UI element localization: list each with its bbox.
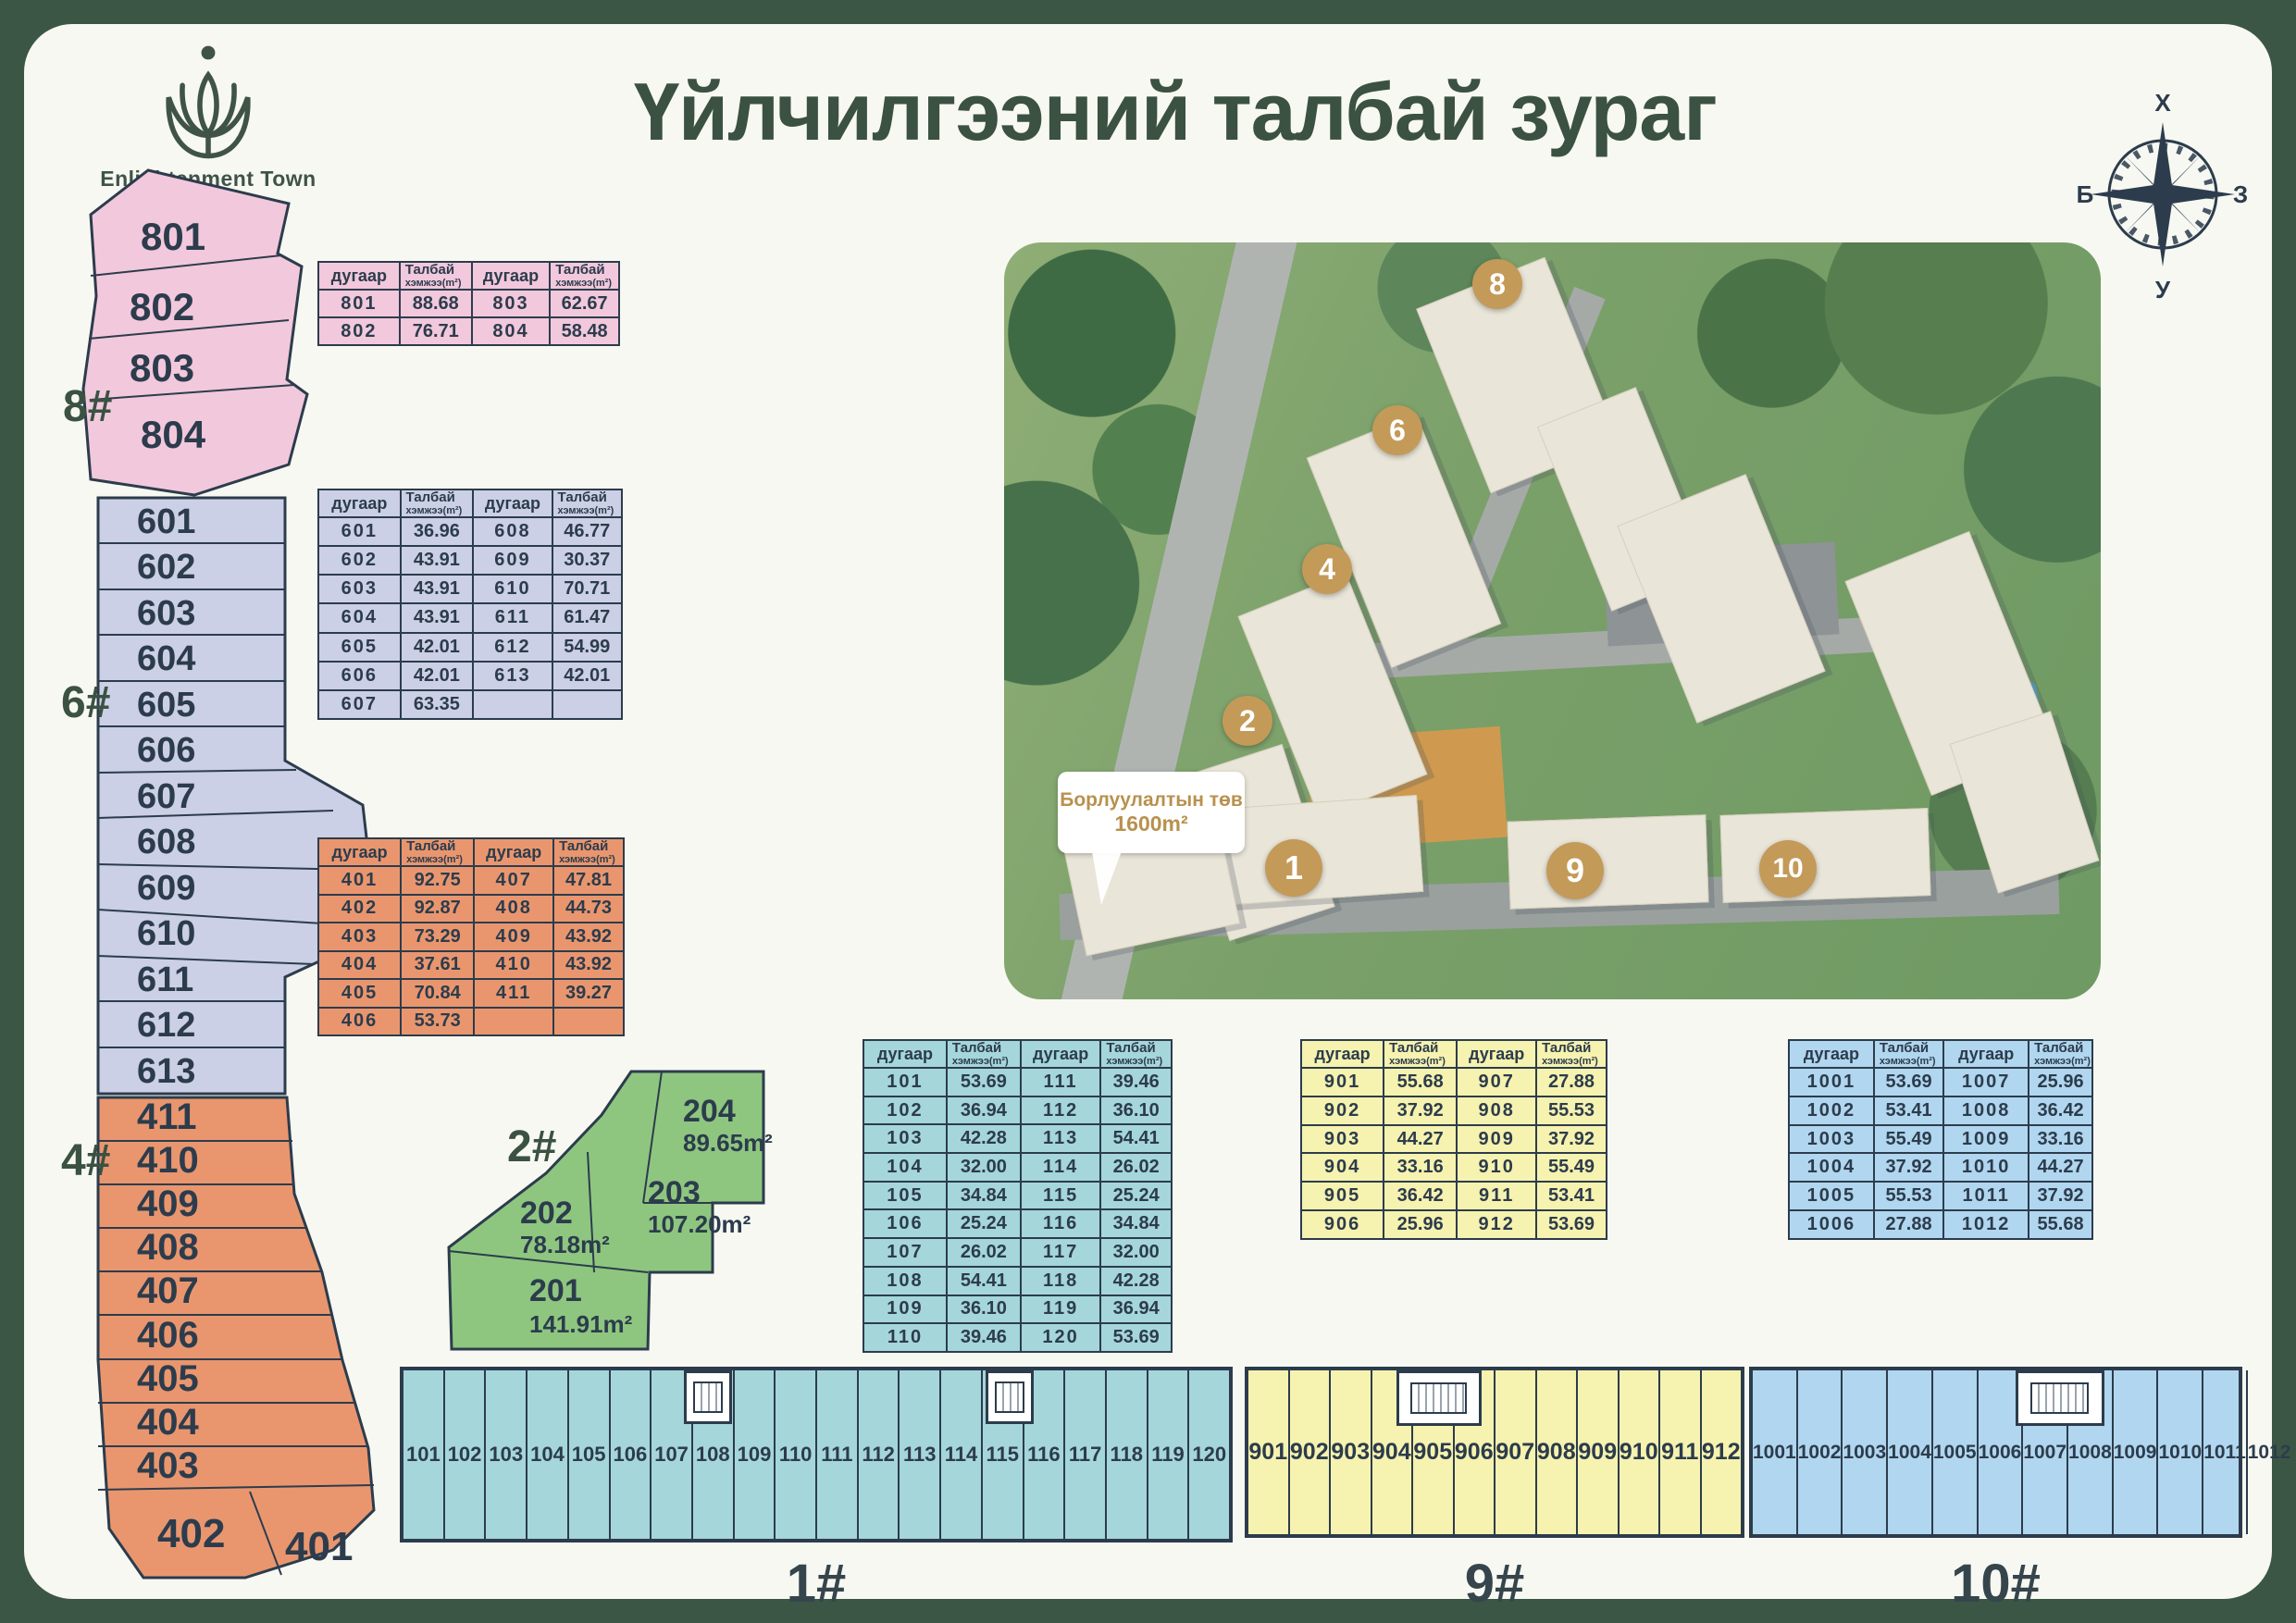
- header-area-line1: Талбай: [1880, 1041, 1942, 1056]
- unit-number: 1005: [1789, 1182, 1874, 1210]
- table-body: 100153.69100725.96100253.41100836.421003…: [1789, 1068, 2092, 1239]
- compass-label-west: Б: [2078, 180, 2093, 208]
- unit-number: 613: [473, 662, 552, 690]
- area-value: 43.91: [401, 603, 474, 632]
- table-body: 90155.6890727.8890237.9290855.5390344.27…: [1301, 1068, 1607, 1239]
- unit-number: 905: [1301, 1182, 1384, 1210]
- area-value: 53.41: [1874, 1096, 1943, 1125]
- table-row: 10153.6911139.46: [863, 1068, 1172, 1096]
- unit-room: 1001: [1753, 1370, 1798, 1534]
- unit-number: 409: [474, 923, 553, 951]
- unit-number: 801: [318, 290, 400, 317]
- area-value: 36.42: [2029, 1096, 2092, 1125]
- unit-room: 1004: [1888, 1370, 1933, 1534]
- area-value: 25.24: [1100, 1182, 1172, 1210]
- room-408: 408: [137, 1227, 199, 1268]
- area-value: 33.16: [1384, 1153, 1457, 1182]
- header-unit-number: дугаар: [1943, 1040, 2029, 1068]
- table-row: 90536.4291153.41: [1301, 1182, 1607, 1210]
- building-badge-8: 8: [1472, 259, 1522, 309]
- room-603: 603: [137, 594, 195, 633]
- unit-number: 802: [318, 317, 400, 345]
- unit-number: 404: [318, 951, 401, 980]
- building-4-label: 4#: [61, 1136, 110, 1185]
- area-value: 36.94: [1100, 1295, 1172, 1324]
- room-402: 402: [157, 1511, 225, 1556]
- room-409: 409: [137, 1183, 199, 1224]
- area-value: 43.92: [553, 951, 624, 980]
- unit-number: 114: [1021, 1153, 1101, 1182]
- building-1-strip-label: 1#: [400, 1553, 1233, 1615]
- header-unit-number: дугаар: [1789, 1040, 1874, 1068]
- table-row: 90625.9691253.69: [1301, 1210, 1607, 1239]
- page-title: Үйлчилгээний талбай зураг: [463, 65, 1888, 159]
- unit-number: 603: [318, 575, 401, 603]
- header-area: Талбайхэмжээ(m²): [550, 262, 619, 290]
- elevator-icon: [693, 1381, 723, 1412]
- unit-number: 104: [863, 1153, 947, 1182]
- header-area-line2: хэмжээ(m²): [952, 1056, 1020, 1067]
- area-value: 26.02: [947, 1238, 1021, 1267]
- room-802: 802: [130, 285, 194, 328]
- area-value: 54.41: [947, 1267, 1021, 1295]
- compass-label-east: З: [2233, 180, 2248, 208]
- unit-number: 407: [474, 866, 553, 895]
- room-612: 612: [137, 1006, 195, 1045]
- table-row: 90344.2790937.92: [1301, 1125, 1607, 1154]
- table-row: 90433.1691055.49: [1301, 1153, 1607, 1182]
- area-value: 44.73: [553, 895, 624, 923]
- building-8-label: 8#: [63, 382, 112, 431]
- room-609: 609: [137, 869, 195, 908]
- building-2-label: 2#: [507, 1122, 556, 1171]
- unit-number: 105: [863, 1182, 947, 1210]
- stairs-icon: [1410, 1382, 1466, 1415]
- table-body: 80188.6880362.6780276.7180458.48: [318, 290, 619, 345]
- table-row: 40192.7540747.81: [318, 866, 624, 895]
- area-value: 37.92: [2029, 1182, 2092, 1210]
- unit-number: 1001: [1789, 1068, 1874, 1096]
- table-row: 90155.6890727.88: [1301, 1068, 1607, 1096]
- area-value: 39.46: [947, 1323, 1021, 1352]
- table-row: 100153.69100725.96: [1789, 1068, 2092, 1096]
- unit-number: 410: [474, 951, 553, 980]
- header-area: Талбайхэмжээ(m²): [553, 838, 624, 866]
- stairwell: [2016, 1370, 2104, 1426]
- header-unit-number: дугаар: [318, 489, 401, 517]
- table-row: 40653.73: [318, 1008, 624, 1036]
- header-area-line2: хэмжээ(m²): [405, 278, 471, 289]
- unit-number: 612: [473, 633, 552, 662]
- area-table-building-1: дугаар Талбайхэмжээ(m²) дугаар Талбайхэм…: [863, 1039, 1173, 1353]
- table-row: 10342.2811354.41: [863, 1124, 1172, 1153]
- unit-number: 903: [1301, 1125, 1384, 1154]
- unit-room: 1005: [1933, 1370, 1979, 1534]
- unit-room: 102: [445, 1370, 487, 1539]
- room-607: 607: [137, 777, 195, 816]
- room-601: 601: [137, 502, 195, 541]
- room-403: 403: [137, 1445, 199, 1486]
- unit-room: 118: [1107, 1370, 1148, 1539]
- page-background: Enlightenment Town Үйлчилгээний талбай з…: [0, 0, 2296, 1623]
- header-area-line1: Талбай: [558, 490, 621, 505]
- area-value: 55.53: [1536, 1096, 1607, 1125]
- room-406: 406: [137, 1315, 199, 1356]
- room-405: 405: [137, 1358, 199, 1399]
- unit-number: 1011: [1943, 1182, 2029, 1210]
- table-row: 80276.7180458.48: [318, 317, 619, 345]
- unit-room: 120: [1189, 1370, 1229, 1539]
- area-value: 43.91: [401, 575, 474, 603]
- unit-number: 1008: [1943, 1096, 2029, 1125]
- unit-number: 609: [473, 546, 552, 575]
- area-value: 53.69: [1100, 1323, 1172, 1352]
- unit-number: 911: [1457, 1182, 1536, 1210]
- table-body: 40192.7540747.8140292.8740844.7340373.29…: [318, 866, 624, 1035]
- area-value: 54.99: [552, 633, 622, 662]
- area-value: 58.48: [550, 317, 619, 345]
- room-201: 201: [529, 1273, 582, 1308]
- header-area-line2: хэмжээ(m²): [1880, 1056, 1942, 1067]
- elevator-icon: [995, 1381, 1024, 1412]
- unit-number: 602: [318, 546, 401, 575]
- unit-number: 1007: [1943, 1068, 2029, 1096]
- unit-room: 901: [1248, 1370, 1290, 1534]
- area-value: 44.27: [2029, 1153, 2092, 1182]
- table-row: 100355.49100933.16: [1789, 1125, 2092, 1154]
- header-area-line2: хэмжээ(m²): [555, 278, 618, 289]
- unit-room: 1009: [2114, 1370, 2159, 1534]
- building-badge-9: 9: [1546, 842, 1604, 899]
- unit-room: 106: [611, 1370, 652, 1539]
- header-area-line2: хэмжээ(m²): [406, 505, 473, 516]
- area-value: 34.84: [947, 1182, 1021, 1210]
- unit-room: 114: [941, 1370, 983, 1539]
- unit-number: 120: [1021, 1323, 1101, 1352]
- area-value: 36.10: [1100, 1096, 1172, 1125]
- unit-room: 111: [817, 1370, 859, 1539]
- area-value: 43.91: [401, 546, 474, 575]
- header-unit-number: дугаар: [472, 262, 551, 290]
- area-table-building-4: дугаар Талбайхэмжээ(m²) дугаар Талбайхэм…: [317, 837, 625, 1036]
- header-area-line2: хэмжээ(m²): [406, 854, 473, 865]
- unit-number: 901: [1301, 1068, 1384, 1096]
- area-value: 36.94: [947, 1096, 1021, 1125]
- aerial-building-right2: [1950, 711, 2100, 893]
- unit-room: 911: [1660, 1370, 1702, 1534]
- unit-number: 1012: [1943, 1210, 2029, 1239]
- room-610: 610: [137, 914, 195, 953]
- unit-number: 1010: [1943, 1153, 2029, 1182]
- unit-number: 804: [472, 317, 551, 345]
- room-604: 604: [137, 639, 195, 678]
- area-value: 27.88: [1536, 1068, 1607, 1096]
- area-value: 26.02: [1100, 1153, 1172, 1182]
- header-area: Талбайхэмжээ(m²): [552, 489, 622, 517]
- area-table-building-8: дугаар Талбайхэмжээ(m²) дугаар Талбайхэм…: [317, 261, 620, 346]
- room-801: 801: [141, 215, 205, 258]
- table-row: 90237.9290855.53: [1301, 1096, 1607, 1125]
- area-value: 53.69: [1536, 1210, 1607, 1239]
- unit-number: 112: [1021, 1096, 1101, 1125]
- building-badge-1: 1: [1265, 839, 1322, 897]
- header-unit-number: дугаар: [1457, 1040, 1536, 1068]
- area-value: 53.69: [947, 1068, 1021, 1096]
- unit-number: 115: [1021, 1182, 1101, 1210]
- unit-room: 104: [527, 1370, 569, 1539]
- header-area: Талбайхэмжээ(m²): [1100, 1040, 1172, 1068]
- unit-number: 608: [473, 517, 552, 546]
- table-body: 60136.9660846.7760243.9160930.3760343.91…: [318, 517, 622, 719]
- table-row: 60136.9660846.77: [318, 517, 622, 546]
- unit-room: 1003: [1843, 1370, 1888, 1534]
- unit-number: 902: [1301, 1096, 1384, 1125]
- table-row: 100555.53101137.92: [1789, 1182, 2092, 1210]
- building-badge-4: 4: [1302, 544, 1352, 594]
- header-area: Талбайхэмжээ(m²): [1536, 1040, 1607, 1068]
- area-value: 42.01: [552, 662, 622, 690]
- table-row: 60243.9160930.37: [318, 546, 622, 575]
- area-value: 37.92: [1384, 1096, 1457, 1125]
- unit-room: 912: [1702, 1370, 1742, 1534]
- header-area-line1: Талбай: [2034, 1041, 2091, 1056]
- unit-number: 610: [473, 575, 552, 603]
- table-row: 40570.8441139.27: [318, 979, 624, 1008]
- aerial-building-10: [1719, 808, 1930, 903]
- area-value: 44.27: [1384, 1125, 1457, 1154]
- room-602: 602: [137, 548, 195, 587]
- unit-number: 111: [1021, 1068, 1101, 1096]
- room-804: 804: [141, 413, 206, 456]
- table-row: 40292.8740844.73: [318, 895, 624, 923]
- unit-number: 907: [1457, 1068, 1536, 1096]
- room-803: 803: [130, 346, 194, 390]
- aerial-building-9: [1507, 814, 1708, 909]
- unit-number: 101: [863, 1068, 947, 1096]
- unit-number: 910: [1457, 1153, 1536, 1182]
- unit-number: 405: [318, 979, 401, 1008]
- compass-label-north: Х: [2154, 89, 2171, 117]
- unit-room: 112: [859, 1370, 900, 1539]
- header-area-line1: Талбай: [559, 839, 623, 854]
- unit-number: 803: [472, 290, 551, 317]
- area-value: 34.84: [1100, 1209, 1172, 1238]
- header-area: Талбайхэмжээ(m²): [2029, 1040, 2092, 1068]
- unit-number: 1006: [1789, 1210, 1874, 1239]
- room-404: 404: [137, 1402, 199, 1443]
- building-10-strip-label: 10#: [1749, 1553, 2242, 1615]
- unit-number: 110: [863, 1323, 947, 1352]
- stairs-icon: [2030, 1382, 2089, 1415]
- area-value: 63.35: [401, 690, 474, 719]
- area-value: 92.87: [401, 895, 474, 923]
- area-value: 53.73: [401, 1008, 474, 1036]
- area-value: 25.24: [947, 1209, 1021, 1238]
- area-value: 62.67: [550, 290, 619, 317]
- table-header-row: дугаар Талбайхэмжээ(m²) дугаар Талбайхэм…: [1789, 1040, 2092, 1068]
- unit-room: 1010: [2158, 1370, 2203, 1534]
- area-value: 55.49: [1874, 1125, 1943, 1154]
- table-row: 10726.0211732.00: [863, 1238, 1172, 1267]
- header-unit-number: дугаар: [1021, 1040, 1101, 1068]
- area-value: 39.46: [1100, 1068, 1172, 1096]
- header-area-line2: хэмжээ(m²): [559, 854, 623, 865]
- unit-number: 411: [474, 979, 553, 1008]
- header-area: Талбайхэмжээ(m²): [400, 262, 472, 290]
- room-204-area: 89.65m²: [683, 1129, 773, 1157]
- unit-number: 1004: [1789, 1153, 1874, 1182]
- area-value: 54.41: [1100, 1124, 1172, 1153]
- unit-number: 109: [863, 1295, 947, 1324]
- unit-number: 904: [1301, 1153, 1384, 1182]
- header-area-line1: Талбай: [1542, 1041, 1606, 1056]
- room-606: 606: [137, 731, 195, 770]
- area-value: 46.77: [552, 517, 622, 546]
- room-203: 203: [648, 1175, 701, 1210]
- table-row: 60343.9161070.71: [318, 575, 622, 603]
- area-value: 92.75: [401, 866, 474, 895]
- unit-number: 607: [318, 690, 401, 719]
- header-unit-number: дугаар: [474, 838, 553, 866]
- area-value: 47.81: [553, 866, 624, 895]
- room-613: 613: [137, 1052, 195, 1091]
- area-value: 70.71: [552, 575, 622, 603]
- table-row: 60542.0161254.99: [318, 633, 622, 662]
- unit-number: 119: [1021, 1295, 1101, 1324]
- room-202: 202: [520, 1196, 573, 1231]
- header-area-line2: хэмжээ(m²): [2034, 1056, 2091, 1067]
- unit-room: 101: [403, 1370, 445, 1539]
- table-row: 40437.6141043.92: [318, 951, 624, 980]
- area-value: 70.84: [401, 979, 474, 1008]
- area-value: [553, 1008, 624, 1036]
- aerial-render: 8 6 4 2 1 9 10 Борлуулалтын төв 1600m²: [1004, 242, 2101, 999]
- unit-room: 902: [1290, 1370, 1332, 1534]
- unit-room: 1002: [1798, 1370, 1843, 1534]
- header-area: Талбайхэмжээ(m²): [401, 489, 474, 517]
- area-value: 55.68: [1384, 1068, 1457, 1096]
- unit-room: 119: [1148, 1370, 1190, 1539]
- unit-room: 105: [569, 1370, 611, 1539]
- area-value: 37.92: [1874, 1153, 1943, 1182]
- building-2-floorplan: 204 89.65m² 203 107.20m² 202 78.18m² 201…: [435, 1064, 773, 1356]
- unit-number: 401: [318, 866, 401, 895]
- room-407: 407: [137, 1270, 199, 1311]
- unit-room: 910: [1620, 1370, 1661, 1534]
- building-badge-2: 2: [1222, 696, 1272, 746]
- area-value: 42.01: [401, 633, 474, 662]
- area-value: 73.29: [401, 923, 474, 951]
- table-row: 100437.92101044.27: [1789, 1153, 2092, 1182]
- unit-number: 106: [863, 1209, 947, 1238]
- area-value: 88.68: [400, 290, 472, 317]
- header-area-line1: Талбай: [406, 490, 473, 505]
- room-608: 608: [137, 823, 195, 861]
- unit-number: 606: [318, 662, 401, 690]
- table-row: 10432.0011426.02: [863, 1153, 1172, 1182]
- area-value: 36.96: [401, 517, 474, 546]
- room-611: 611: [137, 960, 193, 999]
- room-605: 605: [137, 686, 195, 725]
- unit-room: 110: [776, 1370, 817, 1539]
- unit-number: 102: [863, 1096, 947, 1125]
- table-header-row: дугаар Талбайхэмжээ(m²) дугаар Талбайхэм…: [318, 262, 619, 290]
- unit-number: 402: [318, 895, 401, 923]
- area-value: 55.53: [1874, 1182, 1943, 1210]
- area-value: 32.00: [947, 1153, 1021, 1182]
- table-body: 10153.6911139.4610236.9411236.1010342.28…: [863, 1068, 1172, 1352]
- area-value: 42.28: [1100, 1267, 1172, 1295]
- area-value: 25.96: [2029, 1068, 2092, 1096]
- lotus-flower-icon: [153, 41, 264, 161]
- header-unit-number: дугаар: [473, 489, 552, 517]
- elevator-shaft: [684, 1370, 732, 1424]
- area-table-building-10: дугаар Талбайхэмжээ(m²) дугаар Талбайхэм…: [1788, 1039, 2093, 1240]
- area-value: 27.88: [1874, 1210, 1943, 1239]
- unit-room: 903: [1331, 1370, 1372, 1534]
- unit-number: 912: [1457, 1210, 1536, 1239]
- table-row: 60763.35: [318, 690, 622, 719]
- unit-number: 116: [1021, 1209, 1101, 1238]
- table-header-row: дугаар Талбайхэмжээ(m²) дугаар Талбайхэм…: [318, 489, 622, 517]
- table-row: 11039.4612053.69: [863, 1323, 1172, 1352]
- building-badge-6: 6: [1372, 405, 1422, 455]
- sales-center-label: Борлуулалтын төв 1600m²: [1058, 772, 1245, 853]
- unit-number: [473, 690, 552, 719]
- table-row: 60642.0161342.01: [318, 662, 622, 690]
- sales-center-area: 1600m²: [1114, 811, 1187, 836]
- building-10-strip-plan: 1001100210031004100510061007100810091010…: [1749, 1367, 2242, 1538]
- unit-number: 117: [1021, 1238, 1101, 1267]
- table-row: 10534.8411525.24: [863, 1182, 1172, 1210]
- unit-number: 1003: [1789, 1125, 1874, 1154]
- header-area-line1: Талбай: [406, 839, 473, 854]
- header-area: Талбайхэмжээ(m²): [401, 838, 474, 866]
- unit-number: 113: [1021, 1124, 1101, 1153]
- table-header-row: дугаар Талбайхэмжээ(m²) дугаар Талбайхэм…: [863, 1040, 1172, 1068]
- table-row: 10854.4111842.28: [863, 1267, 1172, 1295]
- header-area-line2: хэмжээ(m²): [1106, 1056, 1171, 1067]
- unit-room: 907: [1496, 1370, 1537, 1534]
- header-area-line1: Талбай: [1106, 1041, 1171, 1056]
- stairwell: [1396, 1370, 1482, 1426]
- unit-number: 103: [863, 1124, 947, 1153]
- unit-number: 107: [863, 1238, 947, 1267]
- unit-number: 1009: [1943, 1125, 2029, 1154]
- table-row: 10936.1011936.94: [863, 1295, 1172, 1324]
- sales-label-pointer: [1092, 851, 1122, 905]
- area-value: 43.92: [553, 923, 624, 951]
- header-unit-number: дугаар: [318, 838, 401, 866]
- unit-number: [474, 1008, 553, 1036]
- header-unit-number: дугаар: [1301, 1040, 1384, 1068]
- header-area-line2: хэмжээ(m²): [558, 505, 621, 516]
- table-header-row: дугаар Талбайхэмжээ(m²) дугаар Талбайхэм…: [1301, 1040, 1607, 1068]
- building-6-label: 6#: [61, 678, 110, 727]
- area-value: 36.10: [947, 1295, 1021, 1324]
- table-row: 80188.6880362.67: [318, 290, 619, 317]
- area-value: 53.41: [1536, 1182, 1607, 1210]
- unit-room: 1011: [2203, 1370, 2248, 1534]
- header-area: Талбайхэмжээ(m²): [1874, 1040, 1943, 1068]
- unit-room: 117: [1065, 1370, 1107, 1539]
- room-204: 204: [683, 1094, 736, 1129]
- room-401: 401: [285, 1524, 353, 1569]
- unit-number: 611: [473, 603, 552, 632]
- table-row: 100627.88101255.68: [1789, 1210, 2092, 1239]
- table-row: 100253.41100836.42: [1789, 1096, 2092, 1125]
- header-area-line1: Талбай: [952, 1041, 1020, 1056]
